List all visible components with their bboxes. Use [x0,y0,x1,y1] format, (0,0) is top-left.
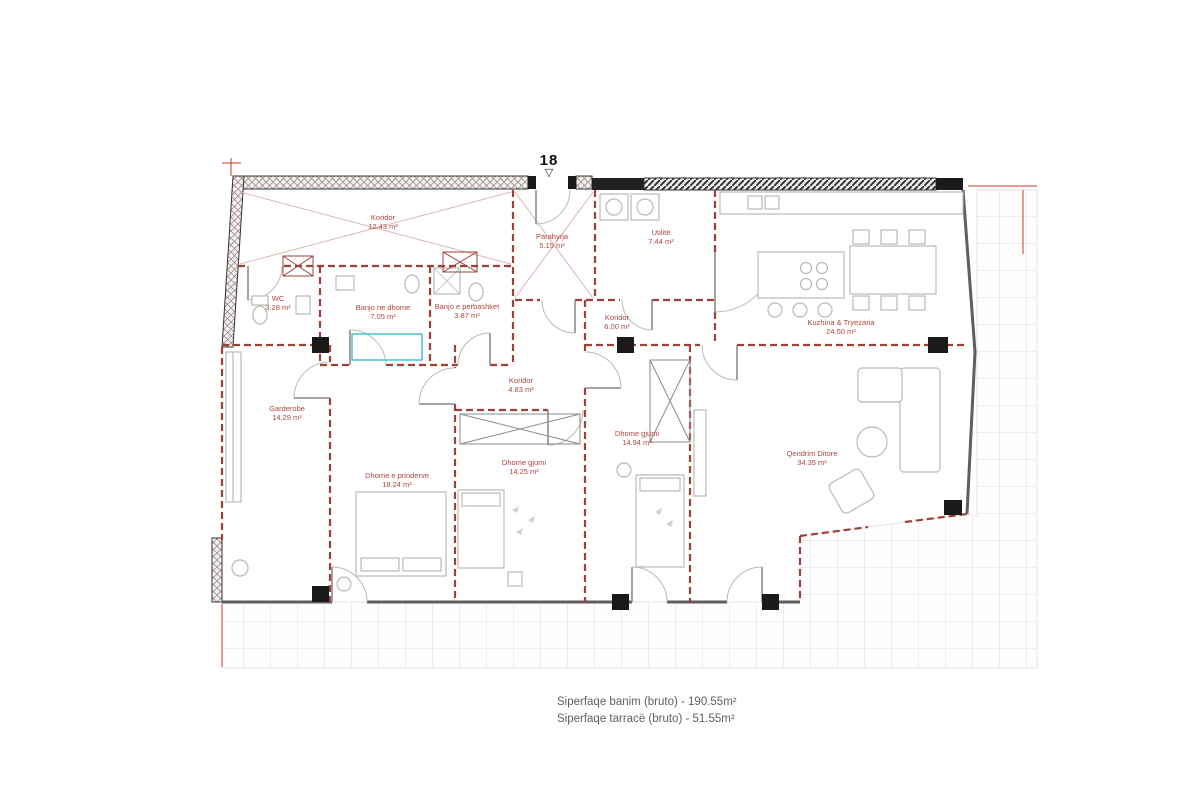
washing-machine-icon [600,194,659,220]
kitchen-island-icon [758,252,844,317]
area-summary: Siperfaqe banim (bruto) - 190.55m² Siper… [557,694,737,728]
room-name: Dhome gjumi [502,458,546,467]
room-area: 14.29 m² [269,413,305,422]
double-bed-icon [337,492,446,591]
room-label-parahyrja: Parahyrja 5.15 m² [536,232,568,250]
wardrobe-rail-icon [226,352,248,576]
room-name: Koridor [604,313,629,322]
dining-table-icon [850,230,936,310]
room-area: 12.43 m² [368,222,398,231]
room-name: Garderobe [269,404,305,413]
room-area: 3.28 m² [265,303,290,312]
room-label-banjo-dhome: Banjo ne dhome 7.05 m² [356,303,411,321]
shared-bath-icon [434,268,483,301]
room-area: 14.25 m² [502,467,546,476]
room-name: Banjo e perbashket [435,302,500,311]
single-bed-2-icon [617,463,684,567]
room-label-prinderve: Dhome e prinderve 18.24 m² [365,471,429,489]
room-area: 7.44 m² [648,237,673,246]
room-name: Utilitë [648,228,673,237]
sofa-icon [694,368,940,515]
floorplan-drawing [0,0,1200,800]
room-label-koridor-lower: Koridor 4.83 m² [508,376,533,394]
room-label-qendrim: Qendrim Ditore 34.35 m² [787,449,838,467]
room-name: Dhome gjumi [615,429,659,438]
room-area: 4.83 m² [508,385,533,394]
unit-number: 18 [540,153,559,168]
entry-triangle-icon: ▽ [540,168,559,179]
room-area: 24.50 m² [807,327,874,336]
room-label-kuzhina: Kuzhina & Tryezaria 24.50 m² [807,318,874,336]
room-label-wc: WC 3.28 m² [265,294,290,312]
room-name: Qendrim Ditore [787,449,838,458]
area-banim-line: Siperfaqe banim (bruto) - 190.55m² [557,694,737,711]
room-area: 14.94 m² [615,438,659,447]
door-arcs [248,190,775,602]
room-label-koridor-mid: Koridor 6.00 m² [604,313,629,331]
room-name: Koridor [508,376,533,385]
single-bed-icon [458,490,522,586]
area-tarrace-line: Siperfaqe tarracë (bruto) - 51.55m² [557,711,737,728]
unit-marker: 18 ▽ [540,153,559,179]
room-name: Dhome e prinderve [365,471,429,480]
room-name: Parahyrja [536,232,568,241]
room-name: Kuzhina & Tryezaria [807,318,874,327]
room-label-gjumi-2: Dhome gjumi 14.94 m² [615,429,659,447]
room-name: Koridor [368,213,398,222]
room-label-banjo-perbashket: Banjo e perbashket 3.87 m² [435,302,500,320]
room-name: Banjo ne dhome [356,303,411,312]
room-area: 34.35 m² [787,458,838,467]
room-area: 6.00 m² [604,322,629,331]
kitchen-counter-icon [720,192,963,214]
room-area: 5.15 m² [536,241,568,250]
room-area: 7.05 m² [356,312,411,321]
room-name: WC [265,294,290,303]
room-label-koridor-top: Koridor 12.43 m² [368,213,398,231]
room-label-gjumi-1: Dhome gjumi 14.25 m² [502,458,546,476]
room-area: 18.24 m² [365,480,429,489]
room-area: 3.87 m² [435,311,500,320]
floorplan-canvas: 18 ▽ Koridor 12.43 m² Parahyrja 5.15 m² … [0,0,1200,800]
room-label-utilite: Utilitë 7.44 m² [648,228,673,246]
room-label-garderobe: Garderobe 14.29 m² [269,404,305,422]
